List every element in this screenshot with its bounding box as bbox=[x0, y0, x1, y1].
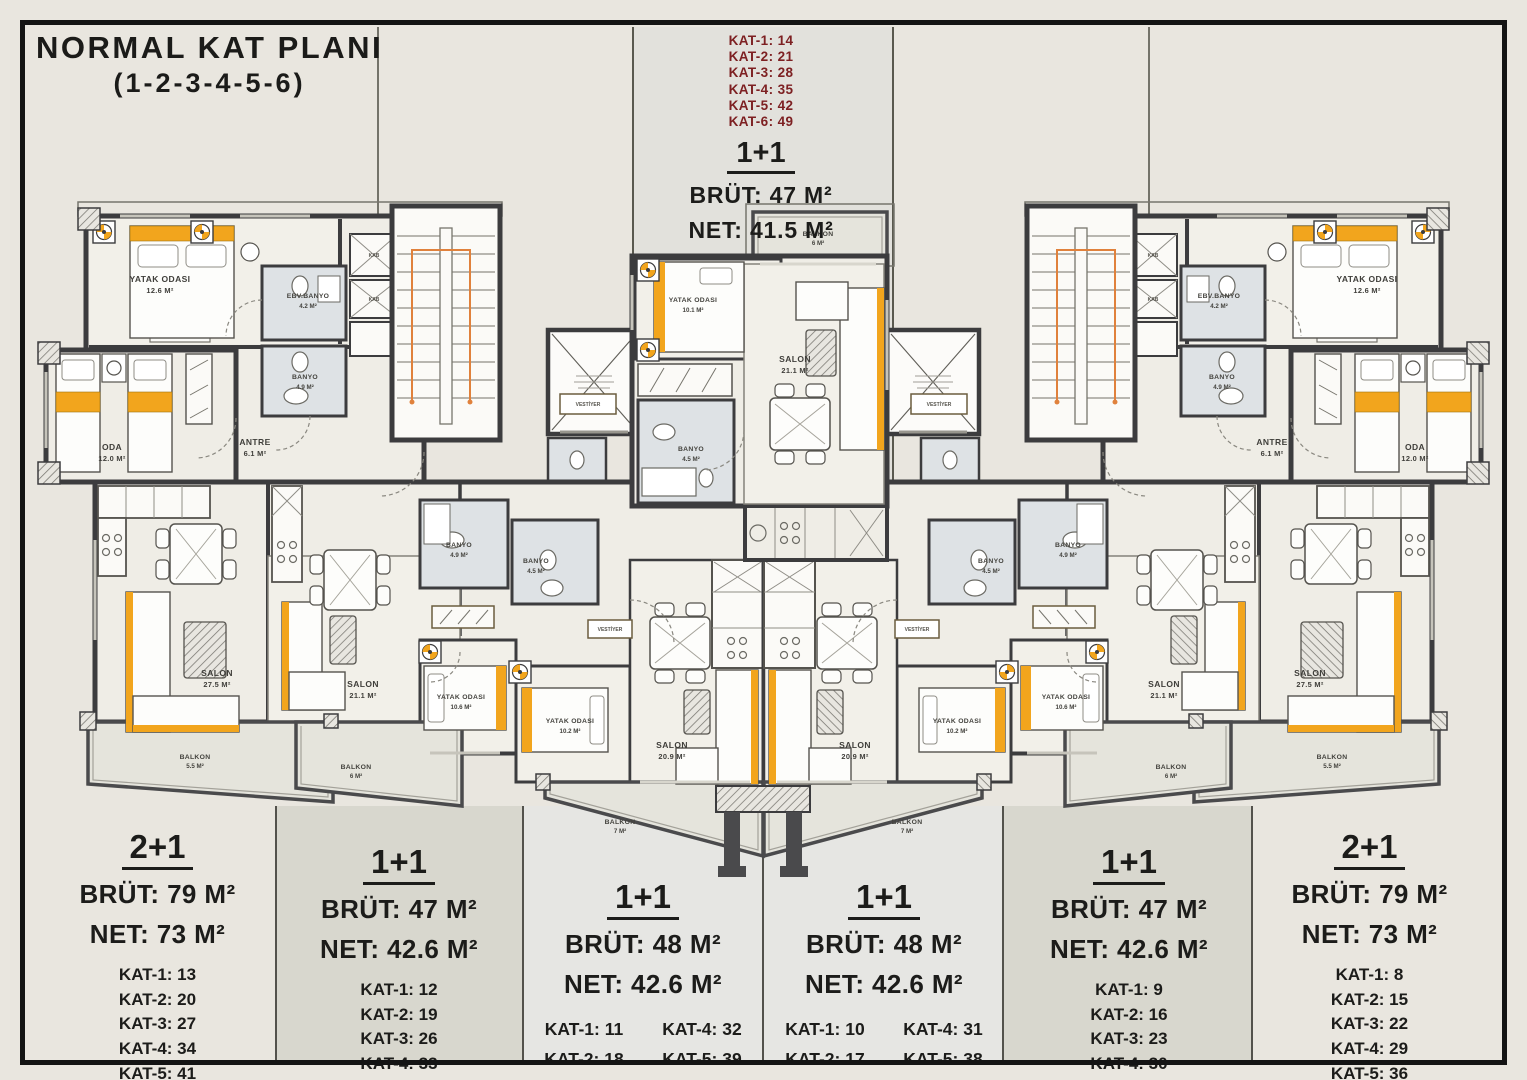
plan-title-line1: NORMAL KAT PLANI bbox=[36, 30, 383, 66]
room-label-oda-left: ODA bbox=[102, 442, 122, 452]
room-label-oda-right: ODA bbox=[1405, 442, 1425, 452]
unit-brut: BRÜT: 48 M² bbox=[527, 929, 759, 960]
svg-text:6 M²: 6 M² bbox=[350, 773, 362, 780]
floor-entry: KAT-3: 28 bbox=[632, 65, 890, 81]
room-label-ebv-banyo-right: EBV.BANYO bbox=[1198, 293, 1241, 300]
unit-net: NET: 73 M² bbox=[1252, 919, 1487, 950]
room-label-yatak-102-left: YATAK ODASI bbox=[546, 718, 595, 725]
floor-entry: KAT-2: 21 bbox=[632, 49, 890, 65]
room-label-antre-right: ANTRE bbox=[1256, 437, 1287, 447]
floor-list: KAT-1: 8 KAT-2: 15 KAT-3: 22 KAT-4: 29 K… bbox=[1252, 963, 1487, 1080]
zone-divider-center bbox=[762, 806, 764, 1062]
svg-text:4.2 M²: 4.2 M² bbox=[299, 303, 317, 310]
unit-brut: BRÜT: 47 M² bbox=[1010, 894, 1248, 925]
svg-text:KAB: KAB bbox=[1148, 297, 1159, 303]
svg-text:4.9 M²: 4.9 M² bbox=[296, 384, 314, 391]
room-label-antre-left: ANTRE bbox=[239, 437, 270, 447]
svg-text:27.5 M²: 27.5 M² bbox=[1296, 680, 1323, 689]
unit-card-3: 1+1 BRÜT: 48 M² NET: 42.6 M² KAT-1: 11 K… bbox=[527, 878, 759, 1080]
unit-brut: BRÜT: 47 M² bbox=[632, 182, 890, 209]
unit-net: NET: 42.6 M² bbox=[768, 969, 1000, 1000]
unit-brut: BRÜT: 48 M² bbox=[768, 929, 1000, 960]
unit-type: 2+1 bbox=[1334, 828, 1406, 870]
shaft-label-kab: KAB bbox=[369, 253, 380, 259]
floor-list: KAT-1: 13 KAT-2: 20 KAT-3: 27 KAT-4: 34 … bbox=[40, 963, 275, 1080]
floor-entry: KAT-4: 35 bbox=[632, 82, 890, 98]
room-label-ebv-banyo-left: EBV.BANYO bbox=[287, 293, 330, 300]
floor-plan-page: YATAK ODASI 12.6 M² EBV.BANYO 4.2 M² BAN… bbox=[0, 0, 1527, 1080]
svg-text:21.1 M²: 21.1 M² bbox=[1150, 691, 1177, 700]
svg-text:KAB: KAB bbox=[369, 297, 380, 303]
unit-type: 1+1 bbox=[363, 843, 435, 885]
room-label-yatak-126-left: YATAK ODASI bbox=[130, 274, 191, 284]
zone-divider-top-right bbox=[1148, 27, 1150, 217]
svg-text:6.1 M²: 6.1 M² bbox=[1261, 449, 1284, 458]
floor-entry: KAT-5: 42 bbox=[632, 98, 890, 114]
unit-card-2: 1+1 BRÜT: 47 M² NET: 42.6 M² KAT-1: 12 K… bbox=[280, 843, 518, 1080]
unit-net: NET: 41.5 M² bbox=[632, 217, 890, 244]
unit-brut: BRÜT: 47 M² bbox=[280, 894, 518, 925]
svg-text:5.5 M²: 5.5 M² bbox=[1323, 763, 1341, 770]
floor-entry: KAT-6: 49 bbox=[632, 114, 890, 130]
svg-text:6 M²: 6 M² bbox=[1165, 773, 1177, 780]
svg-text:4.2 M²: 4.2 M² bbox=[1210, 303, 1228, 310]
unit-type: 1+1 bbox=[848, 878, 920, 920]
room-label-balkon-6-left: BALKON bbox=[341, 764, 372, 771]
svg-text:4.5 M²: 4.5 M² bbox=[982, 568, 1000, 575]
svg-text:10.6 M²: 10.6 M² bbox=[451, 704, 472, 711]
svg-text:VESTİYER: VESTİYER bbox=[598, 626, 623, 633]
svg-text:12.0 M²: 12.0 M² bbox=[98, 454, 125, 463]
room-label-yatak-106-right: YATAK ODASI bbox=[1042, 694, 1091, 701]
elevator-core bbox=[548, 330, 640, 526]
svg-text:27.5 M²: 27.5 M² bbox=[203, 680, 230, 689]
unit-type: 1+1 bbox=[727, 137, 794, 174]
svg-text:10.6 M²: 10.6 M² bbox=[1056, 704, 1077, 711]
plan-title-line2: (1-2-3-4-5-6) bbox=[36, 68, 383, 99]
unit-card-4: 1+1 BRÜT: 48 M² NET: 42.6 M² KAT-1: 10 K… bbox=[768, 878, 1000, 1080]
top-unit-floor-list: KAT-1: 14 KAT-2: 21 KAT-3: 28 KAT-4: 35 … bbox=[632, 33, 890, 130]
svg-text:12.6 M²: 12.6 M² bbox=[146, 286, 173, 295]
unit-type: 1+1 bbox=[607, 878, 679, 920]
svg-text:VESTİYER: VESTİYER bbox=[905, 626, 930, 633]
zone-divider-1 bbox=[275, 806, 277, 1062]
unit-type: 2+1 bbox=[122, 828, 194, 870]
floor-list: KAT-1: 12 KAT-2: 19 KAT-3: 26 KAT-4: 33 … bbox=[280, 978, 518, 1080]
unit-brut: BRÜT: 79 M² bbox=[40, 879, 275, 910]
unit-net: NET: 73 M² bbox=[40, 919, 275, 950]
svg-text:6.1 M²: 6.1 M² bbox=[244, 449, 267, 458]
svg-text:KAB: KAB bbox=[1148, 253, 1159, 259]
room-label-salon-275-left: SALON bbox=[201, 668, 233, 678]
plan-title: NORMAL KAT PLANI (1-2-3-4-5-6) bbox=[36, 30, 383, 99]
room-label-yatak-126-right: YATAK ODASI bbox=[1337, 274, 1398, 284]
room-label-balkon-55-right: BALKON bbox=[1317, 754, 1348, 761]
svg-text:12.6 M²: 12.6 M² bbox=[1353, 286, 1380, 295]
floor-list: KAT-1: 11 KAT-4: 32 KAT-2: 18 KAT-5: 39 … bbox=[527, 1017, 759, 1080]
room-label-banyo49-right: BANYO bbox=[1209, 374, 1235, 381]
stair-core bbox=[392, 206, 500, 440]
room-label-banyo45b-left: BANYO bbox=[523, 558, 549, 565]
floor-entry: KAT-1: 14 bbox=[632, 33, 890, 49]
svg-text:4.9 M²: 4.9 M² bbox=[450, 552, 468, 559]
unit-net: NET: 42.6 M² bbox=[1010, 934, 1248, 965]
room-label-yatak-106-left: YATAK ODASI bbox=[437, 694, 486, 701]
room-label-banyo49-left: BANYO bbox=[292, 374, 318, 381]
svg-text:10.2 M²: 10.2 M² bbox=[947, 728, 968, 735]
svg-text:4.5 M²: 4.5 M² bbox=[527, 568, 545, 575]
svg-text:21.1 M²: 21.1 M² bbox=[349, 691, 376, 700]
room-label-salon-275-right: SALON bbox=[1294, 668, 1326, 678]
svg-text:10.2 M²: 10.2 M² bbox=[560, 728, 581, 735]
room-label-yatak-102-right: YATAK ODASI bbox=[933, 718, 982, 725]
cabinet-label-vestiyer: VESTİYER bbox=[576, 401, 601, 408]
svg-text:4.9 M²: 4.9 M² bbox=[1213, 384, 1231, 391]
svg-text:5.5 M²: 5.5 M² bbox=[186, 763, 204, 770]
unit-brut: BRÜT: 79 M² bbox=[1252, 879, 1487, 910]
room-label-banyo49b-left: BANYO bbox=[446, 542, 472, 549]
room-label-salon-211-left: SALON bbox=[347, 679, 379, 689]
room-label-salon-211-right: SALON bbox=[1148, 679, 1180, 689]
svg-text:12.0 M²: 12.0 M² bbox=[1401, 454, 1428, 463]
room-label-balkon-55-left: BALKON bbox=[180, 754, 211, 761]
unit-card-6: 2+1 BRÜT: 79 M² NET: 73 M² KAT-1: 8 KAT-… bbox=[1252, 828, 1487, 1080]
top-unit-info: KAT-1: 14 KAT-2: 21 KAT-3: 28 KAT-4: 35 … bbox=[632, 33, 890, 244]
unit-net: NET: 42.6 M² bbox=[280, 934, 518, 965]
zone-divider-3 bbox=[1002, 806, 1004, 1062]
svg-text:VESTİYER: VESTİYER bbox=[927, 401, 952, 408]
unit-net: NET: 42.6 M² bbox=[527, 969, 759, 1000]
unit-card-5: 1+1 BRÜT: 47 M² NET: 42.6 M² KAT-1: 9 KA… bbox=[1010, 843, 1248, 1080]
floor-list: KAT-1: 10 KAT-4: 31 KAT-2: 17 KAT-5: 38 … bbox=[768, 1017, 1000, 1080]
floor-list: KAT-1: 9 KAT-2: 16 KAT-3: 23 KAT-4: 30 K… bbox=[1010, 978, 1248, 1080]
svg-text:4.9 M²: 4.9 M² bbox=[1059, 552, 1077, 559]
unit-type: 1+1 bbox=[1093, 843, 1165, 885]
room-label-banyo49b-right: BANYO bbox=[1055, 542, 1081, 549]
zone-divider-2 bbox=[522, 806, 524, 1062]
room-label-balkon-6-right: BALKON bbox=[1156, 764, 1187, 771]
room-label-banyo45b-right: BANYO bbox=[978, 558, 1004, 565]
unit-card-1: 2+1 BRÜT: 79 M² NET: 73 M² KAT-1: 13 KAT… bbox=[40, 828, 275, 1080]
